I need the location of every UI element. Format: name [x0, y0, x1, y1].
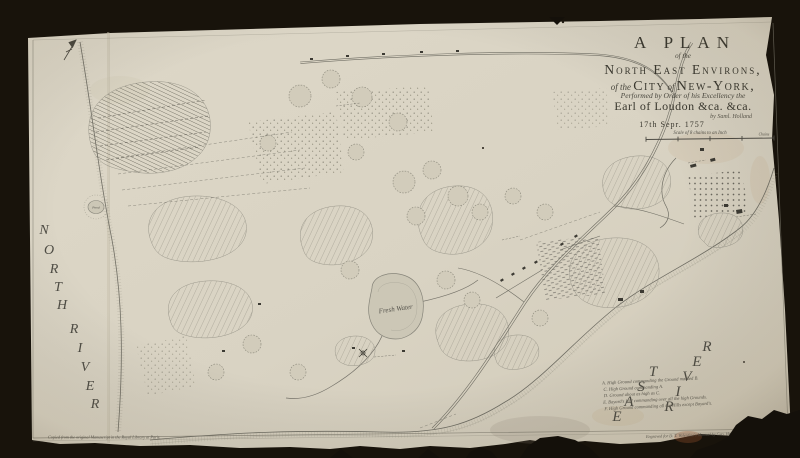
scanned-map: A PLAN of the North East Environs, of th… — [0, 0, 800, 458]
map-scan-canvas: A PLAN of the North East Environs, of th… — [0, 0, 800, 458]
paper-vignette — [28, 17, 791, 449]
